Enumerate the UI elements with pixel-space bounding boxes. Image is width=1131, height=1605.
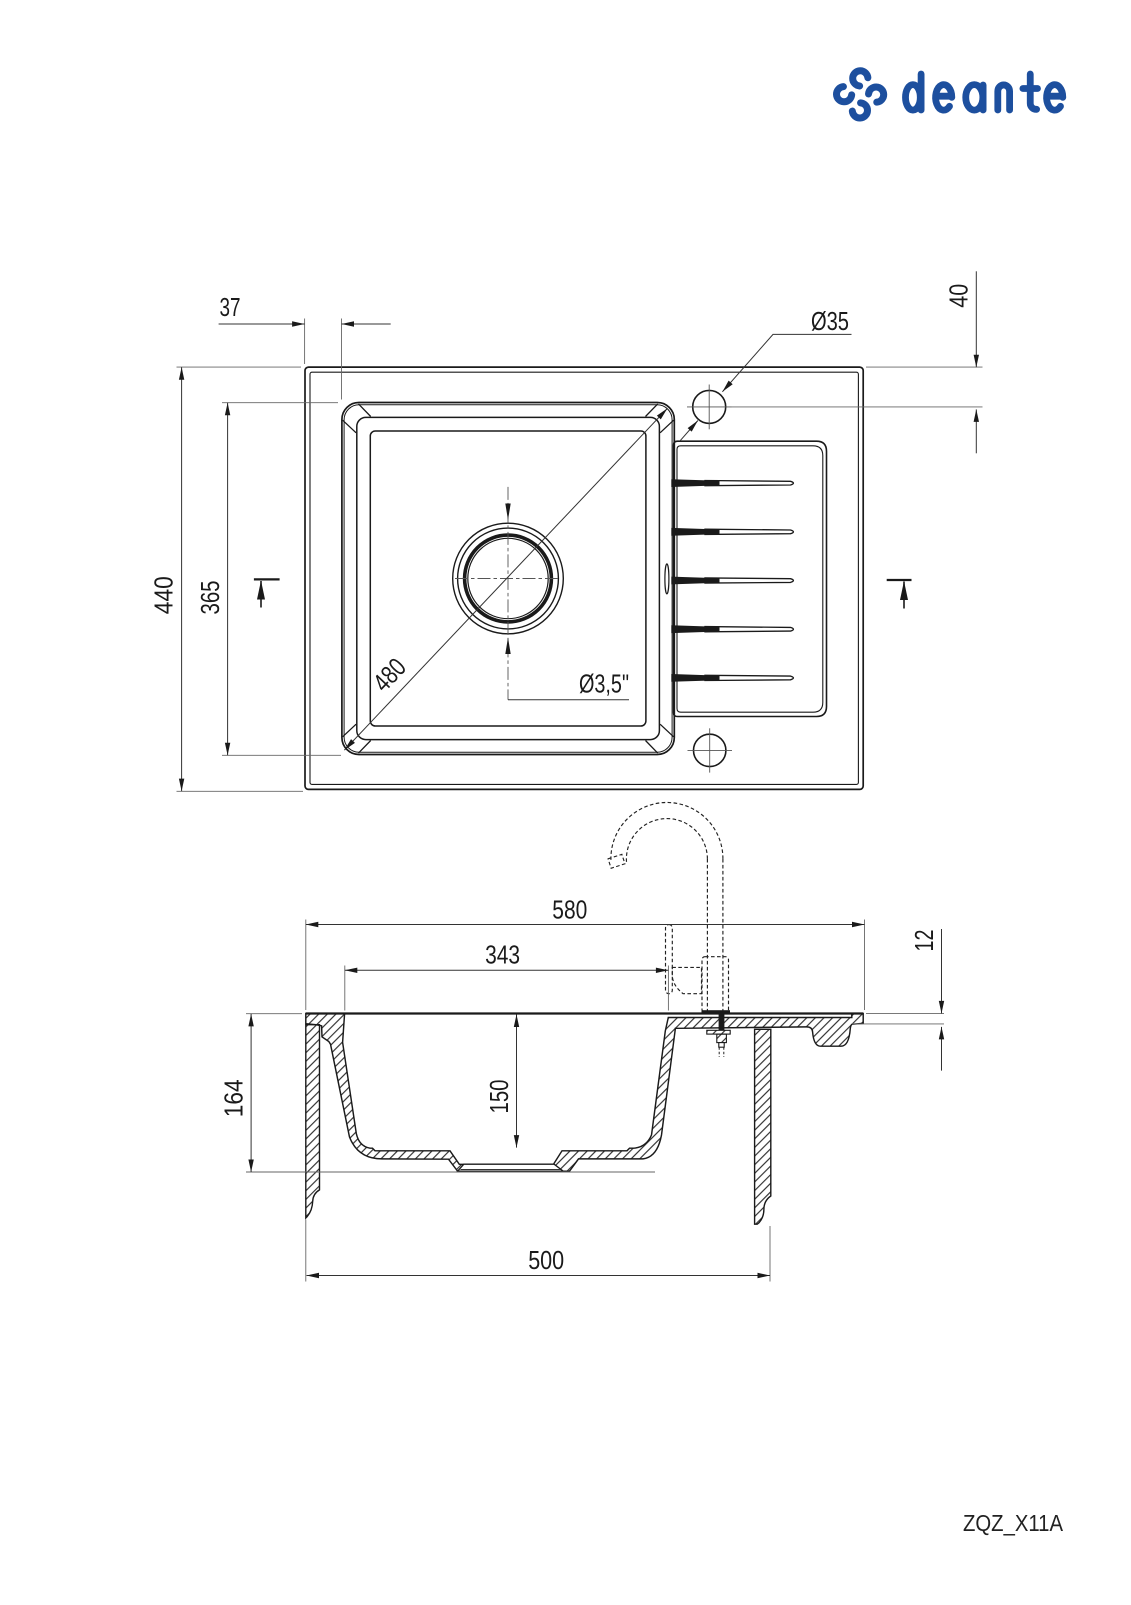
svg-text:150: 150 — [484, 1080, 514, 1114]
svg-text:ZQZ_X11A: ZQZ_X11A — [963, 1510, 1064, 1536]
svg-text:164: 164 — [219, 1079, 249, 1117]
svg-text:580: 580 — [552, 895, 587, 925]
svg-text:40: 40 — [944, 284, 974, 308]
svg-text:440: 440 — [149, 576, 179, 614]
svg-text:37: 37 — [220, 292, 241, 322]
svg-text:365: 365 — [195, 581, 225, 615]
svg-text:343: 343 — [485, 940, 520, 970]
svg-text:Ø3,5": Ø3,5" — [579, 669, 629, 699]
svg-text:500: 500 — [528, 1245, 564, 1275]
svg-text:12: 12 — [909, 930, 939, 952]
svg-text:Ø35: Ø35 — [811, 306, 849, 336]
